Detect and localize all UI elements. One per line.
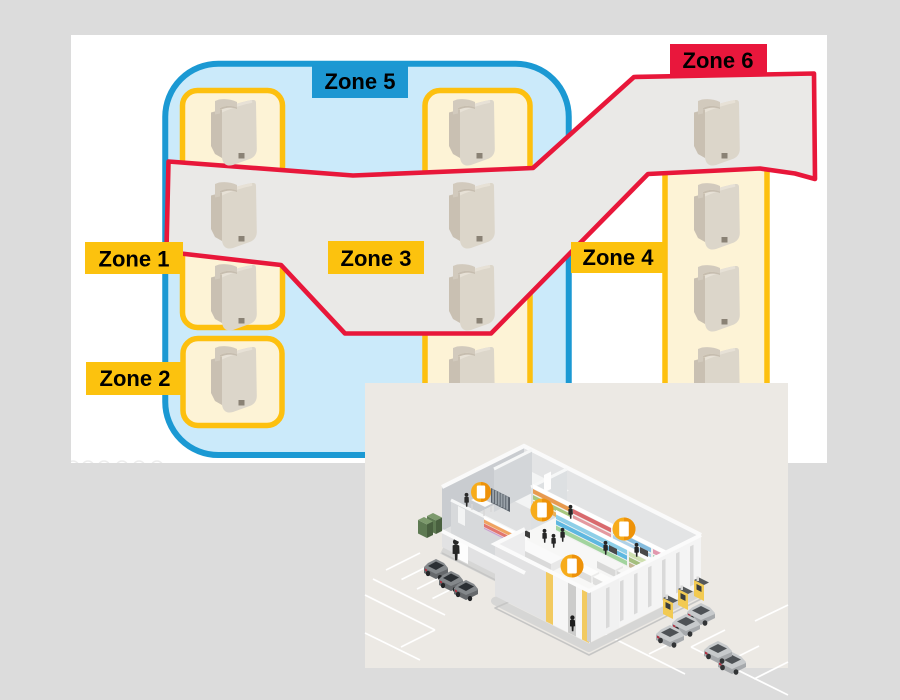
- svg-text:Zone 1: Zone 1: [99, 247, 170, 272]
- svg-text:Zone 4: Zone 4: [583, 245, 655, 270]
- svg-text:Zone 5: Zone 5: [325, 69, 396, 94]
- svg-text:Zone 3: Zone 3: [341, 246, 412, 271]
- svg-text:Zone 2: Zone 2: [100, 366, 171, 391]
- svg-text:Zone 6: Zone 6: [683, 48, 754, 73]
